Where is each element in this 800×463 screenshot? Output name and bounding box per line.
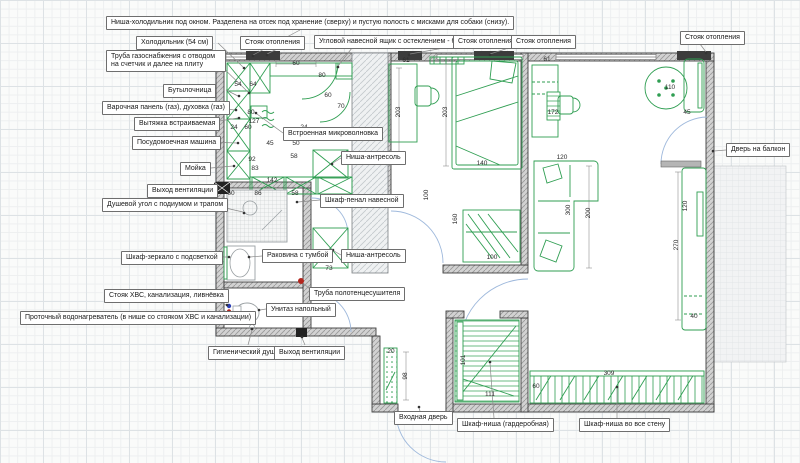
callout-balcony-door: Дверь на балкон	[726, 143, 790, 157]
dimension-text: 100	[487, 255, 498, 262]
callout-wardrobe-niche: Шкаф-ниша (гардеробная)	[457, 418, 554, 432]
callout-bottle-rack: Бутылочница	[163, 84, 216, 98]
dimension-text: 73	[325, 266, 332, 273]
dimension-text: 58	[291, 191, 298, 198]
callout-hygienic-shower: Гигиенический душ	[208, 346, 281, 360]
floor-plan-canvas: Ниша-холодильник под окном. Разделена на…	[0, 0, 800, 463]
callout-shower-corner: Душевой угол с подиумом и трапом	[102, 198, 228, 212]
callout-fridge: Холодильник (54 см)	[136, 36, 213, 50]
dimension-text: 70	[337, 104, 344, 111]
callout-mezzanine-niche-2: Ниша-антресоль	[341, 249, 406, 263]
dimension-text: 100	[424, 190, 431, 201]
callout-heating-riser-2: Стояк отопления	[453, 35, 518, 49]
callout-built-in-microwave: Встроенная микроволновка	[283, 127, 383, 141]
dimension-text: 61	[543, 57, 550, 64]
callout-heating-riser-3: Стояк отопления	[511, 35, 576, 49]
callout-vent-outlet-2: Выход вентиляции	[274, 346, 345, 360]
dimension-text: 172	[548, 110, 559, 117]
dimension-text: 160	[453, 214, 460, 225]
callout-hob-oven: Варочная панель (газ), духовка (газ)	[102, 101, 230, 115]
dimension-text: 101	[461, 355, 468, 366]
callout-gas-pipe: Труба газоснабжения с отводом на счетчик…	[106, 50, 226, 72]
callout-kitchen-sink: Мойка	[180, 162, 211, 176]
dimension-text: 200	[586, 208, 593, 219]
dimension-text: 270	[674, 240, 681, 251]
callout-fridge-niche-note: Ниша-холодильник под окном. Разделена на…	[106, 16, 514, 30]
callout-hood: Вытяжка встраиваемая	[134, 117, 220, 131]
dimension-text: 203	[396, 107, 403, 118]
callout-vanity-sink: Раковина с тумбой	[262, 249, 333, 263]
balcony-door-leaf	[661, 161, 701, 167]
dimension-text: 120	[557, 155, 568, 162]
dimension-text: 120	[683, 201, 690, 212]
callout-water-heater: Проточный водонагреватель (в нише со сто…	[20, 311, 256, 325]
callout-floor-toilet: Унитаз напольный	[266, 303, 336, 317]
dimension-text: 80	[247, 110, 254, 117]
dimension-text: 80	[318, 73, 325, 80]
callout-dishwasher: Посудомоечная машина	[132, 136, 221, 150]
dimension-text: 111	[485, 392, 495, 399]
dimension-text: 58	[290, 154, 297, 161]
vent-box-2	[296, 328, 307, 337]
dimension-text: 98	[403, 372, 410, 379]
dimension-text: 64	[249, 82, 256, 89]
callout-heating-riser-4: Стояк отопления	[680, 31, 745, 45]
dimension-text: 61	[402, 58, 409, 65]
dimension-text: 140	[477, 161, 488, 168]
callout-vent-outlet-1: Выход вентиляции	[147, 184, 218, 198]
callout-tall-wall-cabinet: Шкаф-пенал навесной	[320, 194, 404, 208]
dimension-text: 60	[227, 191, 234, 198]
dimension-text: 203	[443, 107, 450, 118]
dimension-text: 54	[234, 82, 241, 89]
dimension-text: 60	[244, 125, 251, 132]
dimension-text: 300	[566, 205, 573, 216]
dimension-text: 45	[266, 141, 273, 148]
callout-water-riser: Стояк ХВС, канализация, ливнёвка	[104, 289, 229, 303]
dimension-text: 86	[254, 191, 261, 198]
dimension-text: 40	[690, 314, 697, 321]
callout-mirror-cabinet: Шкаф-зеркало с подсветкой	[121, 251, 223, 265]
dimension-text: 60	[292, 61, 299, 68]
dimension-text: 45	[683, 110, 690, 117]
dimension-text: 50	[292, 141, 299, 148]
callout-heating-riser-1: Стояк отопления	[240, 36, 305, 50]
dimension-text: 309	[604, 371, 615, 378]
dimension-text: 83	[251, 166, 258, 173]
dimension-text: 142	[267, 178, 278, 185]
dimension-text: 24	[230, 125, 237, 132]
dimension-text: 20	[387, 349, 394, 356]
dimension-text: 110	[665, 85, 675, 92]
callout-towel-dryer-pipe: Труба полотенцесушителя	[309, 287, 405, 301]
callout-mezzanine-niche-1: Ниша-антресоль	[341, 151, 406, 165]
callout-entry-door: Входная дверь	[394, 411, 453, 425]
dimension-text: 60	[324, 93, 331, 100]
dimension-text: 60	[532, 384, 539, 391]
callout-full-wall-closet: Шкаф-ниша во все стену	[579, 418, 670, 432]
dimension-text: 92	[248, 157, 255, 164]
